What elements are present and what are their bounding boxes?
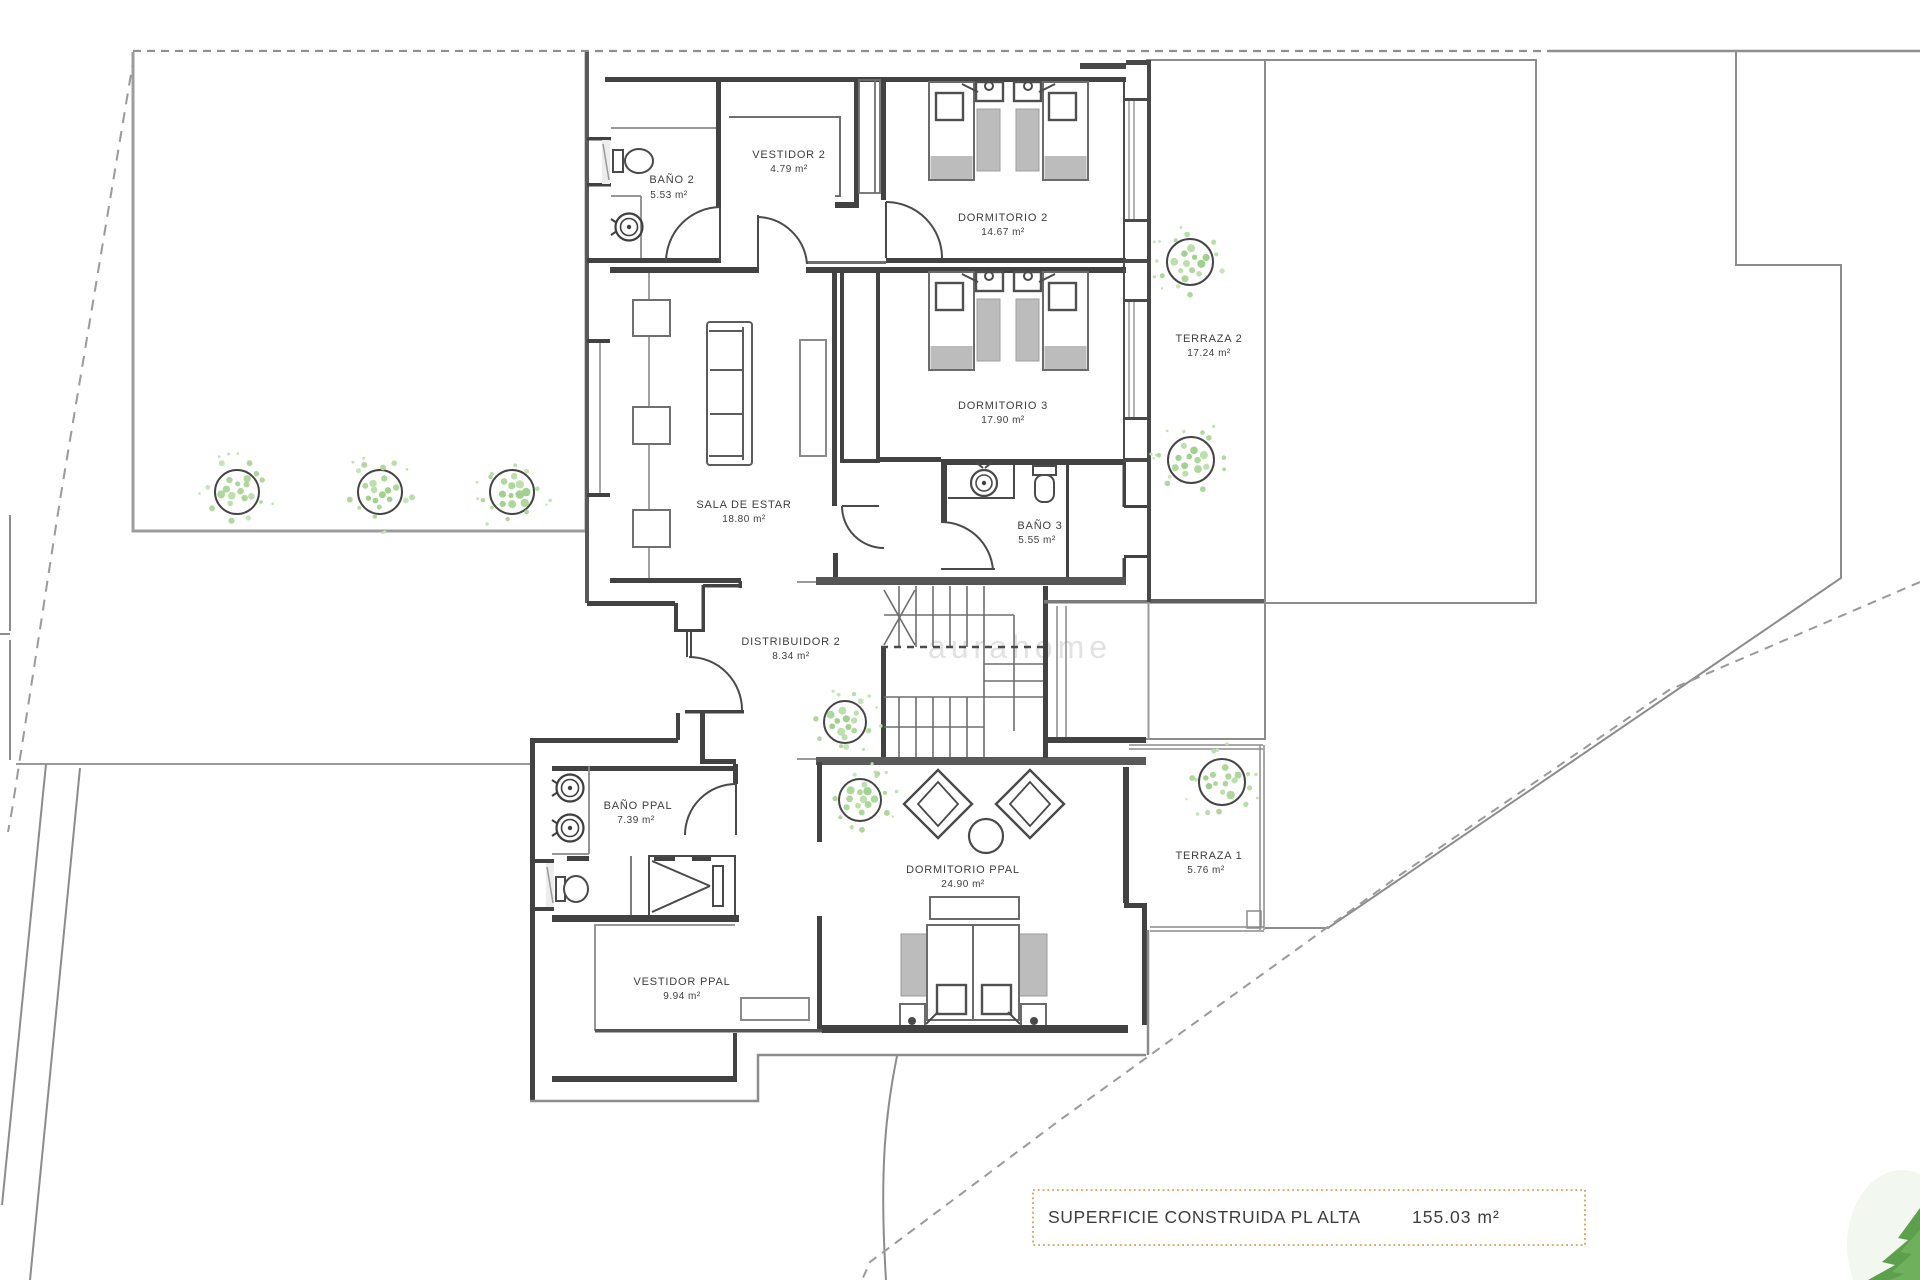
svg-text:SALA DE ESTAR: SALA DE ESTAR — [696, 499, 791, 511]
svg-text:DORMITORIO 3: DORMITORIO 3 — [958, 400, 1048, 412]
svg-text:DORMITORIO 2: DORMITORIO 2 — [958, 212, 1048, 224]
svg-text:9.94 m²: 9.94 m² — [663, 991, 701, 1002]
svg-text:18.80 m²: 18.80 m² — [722, 514, 766, 525]
svg-text:7.39 m²: 7.39 m² — [617, 815, 655, 826]
svg-text:DISTRIBUIDOR 2: DISTRIBUIDOR 2 — [741, 636, 840, 648]
svg-text:24.90 m²: 24.90 m² — [941, 879, 985, 890]
svg-text:155.03 m²: 155.03 m² — [1412, 1207, 1500, 1227]
svg-text:BAÑO 3: BAÑO 3 — [1017, 519, 1062, 532]
svg-text:5.53 m²: 5.53 m² — [650, 190, 688, 201]
svg-text:VESTIDOR 2: VESTIDOR 2 — [752, 149, 825, 161]
svg-text:14.67 m²: 14.67 m² — [981, 227, 1025, 238]
svg-text:17.24 m²: 17.24 m² — [1187, 348, 1231, 359]
svg-text:5.55 m²: 5.55 m² — [1018, 535, 1056, 546]
svg-text:TERRAZA 1: TERRAZA 1 — [1175, 850, 1242, 862]
svg-text:BAÑO 2: BAÑO 2 — [649, 173, 694, 186]
svg-text:8.34 m²: 8.34 m² — [772, 651, 810, 662]
svg-text:TERRAZA 2: TERRAZA 2 — [1175, 333, 1242, 345]
svg-text:DORMITORIO PPAL: DORMITORIO PPAL — [906, 864, 1020, 876]
svg-text:aurahome: aurahome — [928, 629, 1112, 665]
svg-text:17.90 m²: 17.90 m² — [981, 415, 1025, 426]
svg-text:SUPERFICIE CONSTRUIDA PL ALTA: SUPERFICIE CONSTRUIDA PL ALTA — [1048, 1207, 1361, 1227]
svg-text:4.79 m²: 4.79 m² — [770, 164, 808, 175]
svg-text:VESTIDOR PPAL: VESTIDOR PPAL — [634, 976, 731, 988]
svg-text:BAÑO PPAL: BAÑO PPAL — [604, 799, 673, 812]
svg-text:5.76 m²: 5.76 m² — [1187, 865, 1225, 876]
